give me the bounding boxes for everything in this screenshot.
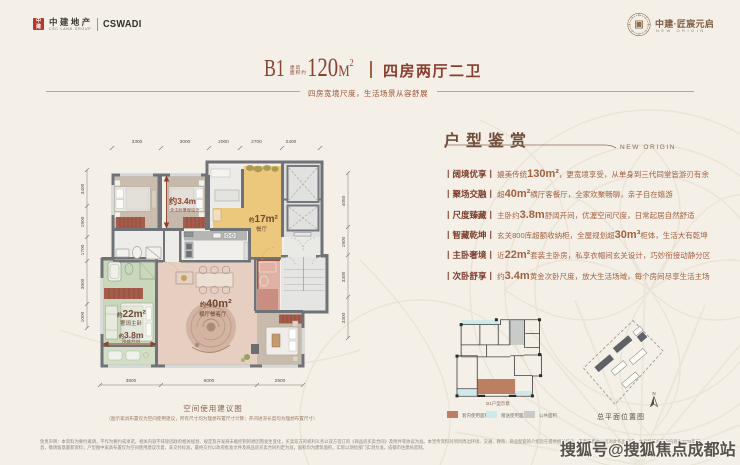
svg-text:总平面位置图: 总平面位置图	[597, 412, 645, 421]
svg-text:N: N	[652, 391, 655, 396]
svg-text:B1户型示意: B1户型示意	[486, 400, 510, 407]
svg-text:公共面积: 公共面积	[539, 412, 557, 419]
svg-text:套内使用面积: 套内使用面积	[462, 412, 489, 419]
